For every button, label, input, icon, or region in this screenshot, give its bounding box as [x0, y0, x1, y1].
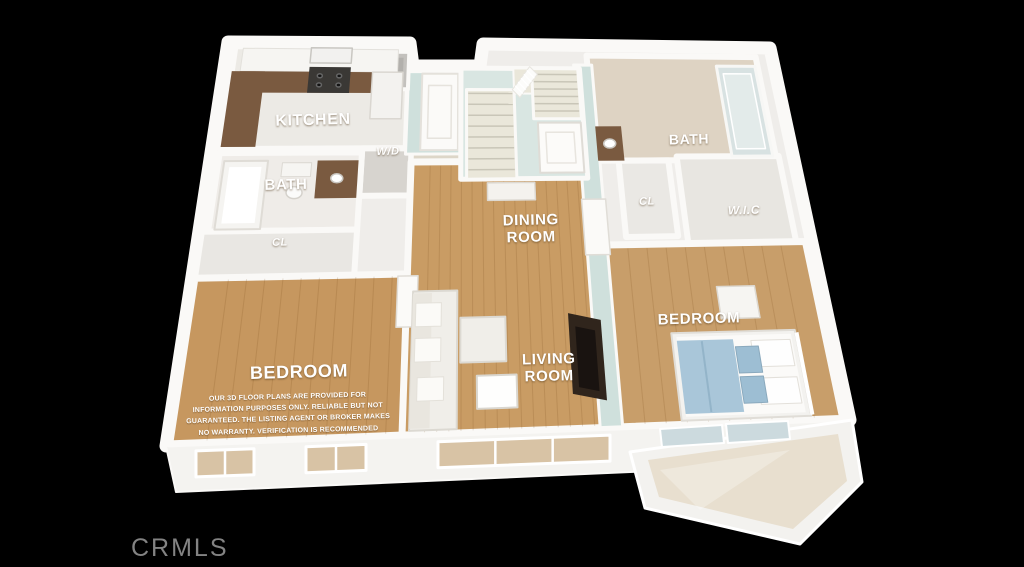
room-label-bath-left: BATH — [264, 176, 307, 194]
fixture — [336, 83, 341, 87]
disclaimer-text: OUR 3D FLOOR PLANS ARE PROVIDED FOR INFO… — [163, 388, 414, 439]
fixture — [316, 83, 321, 87]
room-label-bedroom-right: BEDROOM — [657, 310, 740, 329]
floor-plan-rendering — [0, 0, 1024, 567]
room-label-bedroom-left: BEDROOM — [249, 360, 348, 383]
sliding-door-pane — [726, 421, 790, 443]
fixture — [337, 74, 342, 78]
sofa-pillow — [417, 377, 444, 401]
toilet-tank — [281, 163, 312, 177]
room-label-dining-room: DINING ROOM — [502, 211, 559, 247]
floor-plan-stage: KITCHEN W/D BATH CL DINING ROOM LIVING R… — [0, 0, 1024, 567]
bed-accent-pillow — [735, 346, 762, 373]
stove — [307, 67, 351, 93]
crmls-watermark: CRMLS — [131, 534, 229, 563]
kitchen-fridge — [370, 72, 403, 119]
coffee-table — [477, 375, 518, 409]
stairs-lower-flight — [467, 90, 517, 180]
fixture — [604, 139, 616, 148]
fixture — [331, 174, 343, 183]
room-label-living-room: LIVING ROOM — [522, 350, 576, 386]
wic-floor — [677, 156, 797, 244]
stair-base-step — [487, 182, 535, 200]
room-label-closet-right: CL — [639, 196, 655, 209]
floor-plank — [461, 166, 462, 431]
understair-door — [538, 123, 585, 173]
room-label-bath-right: BATH — [668, 131, 709, 148]
room-label-closet-left: CL — [272, 236, 288, 249]
microwave — [310, 48, 352, 64]
room-label-wic: W.I.C — [728, 203, 760, 218]
room-label-washer-dryer: W/D — [376, 146, 400, 159]
bed-accent-pillow — [740, 376, 768, 403]
bedroom-right-door — [582, 199, 611, 255]
room-label-kitchen: KITCHEN — [275, 111, 351, 131]
front-window — [438, 435, 610, 468]
sofa-chaise — [460, 317, 506, 363]
sofa-pillow — [415, 303, 441, 327]
sliding-door-pane — [660, 425, 724, 447]
sofa-pillow — [414, 338, 441, 362]
fixture — [317, 74, 322, 78]
